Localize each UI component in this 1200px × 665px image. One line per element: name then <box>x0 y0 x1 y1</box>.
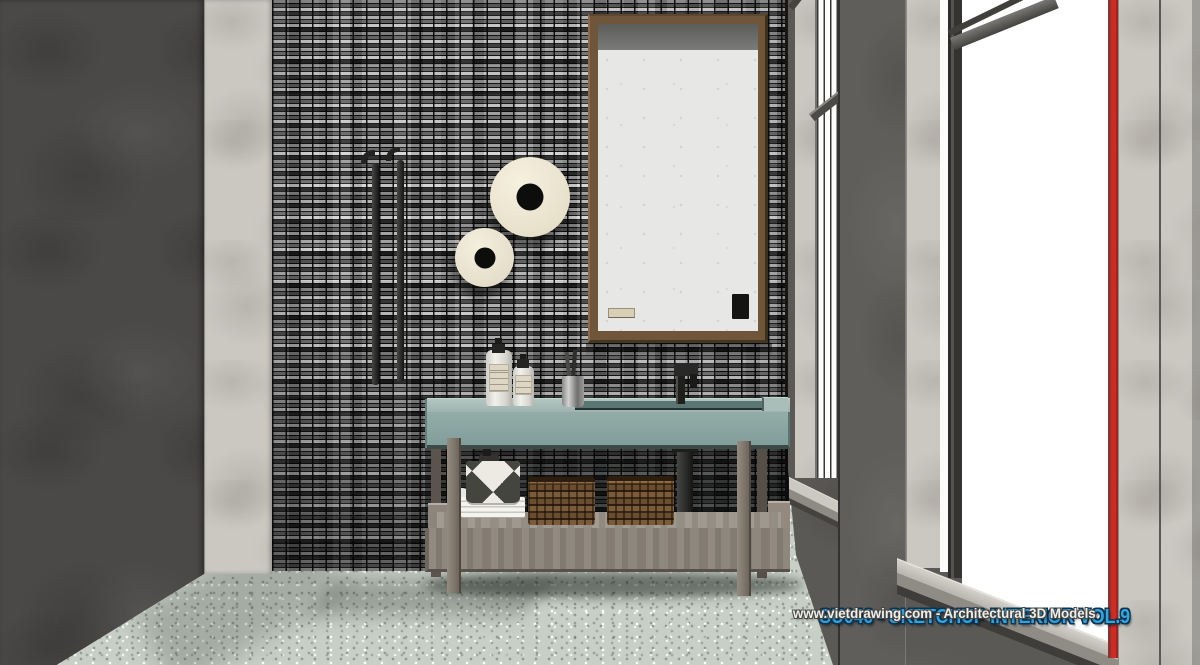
soap-dispenser-short-label <box>515 375 532 395</box>
round-wall-decor-large <box>490 157 570 237</box>
disc-center-hole <box>517 184 544 211</box>
round-wall-decor-small <box>455 228 514 287</box>
sketchup-render-viewport: SU046 - SKETCHUP INTERIOR VOL.9 www.viet… <box>0 0 1200 665</box>
black-cup-reflection <box>732 294 749 319</box>
mirror-drop-shadow <box>586 343 772 356</box>
disc-center-hole <box>474 247 495 268</box>
narrow-window-opening <box>817 0 838 478</box>
red-layout-line <box>1108 0 1118 658</box>
toothbrush-cup <box>562 376 584 407</box>
window-jamb-concrete <box>795 0 817 478</box>
dispenser-pump-collar <box>492 344 505 353</box>
large-window-opening <box>962 0 1109 660</box>
sink-trough <box>575 401 768 410</box>
faucet-spout <box>690 374 697 387</box>
shelf-front-apron <box>425 528 790 572</box>
pillar-seam-line <box>1159 0 1161 665</box>
wicker-basket-left <box>528 477 595 525</box>
dispenser-pump-collar <box>517 359 529 368</box>
pillar-edge-shade <box>1192 0 1200 665</box>
watermark-subtitle: www.vietdrawing.com - Architectural 3D M… <box>793 606 1096 622</box>
dark-wall-pier <box>838 0 906 665</box>
soap-dispenser-tall-label <box>489 364 509 392</box>
wall-mirror-wood-frame <box>588 14 768 343</box>
concrete-strip-left <box>204 0 272 574</box>
hanging-rail-left <box>372 163 379 385</box>
counter-front-face <box>427 412 790 449</box>
fabric-basket-diamond-pattern <box>466 461 520 505</box>
hanging-rail-right <box>397 160 404 382</box>
concrete-pillar-middle <box>906 0 940 568</box>
window-light-sliver <box>940 0 948 572</box>
wicker-basket-right <box>607 476 674 525</box>
vanity-front-leg-right <box>737 441 751 596</box>
sink-right-lip <box>762 397 788 411</box>
large-window-frame <box>948 0 962 578</box>
mirror-glass <box>598 24 758 331</box>
mirror-ceiling-reflection <box>598 24 758 50</box>
dark-side-wall-left <box>0 0 204 665</box>
soap-bar-reflection <box>608 308 635 318</box>
vanity-front-leg-left <box>447 438 461 593</box>
